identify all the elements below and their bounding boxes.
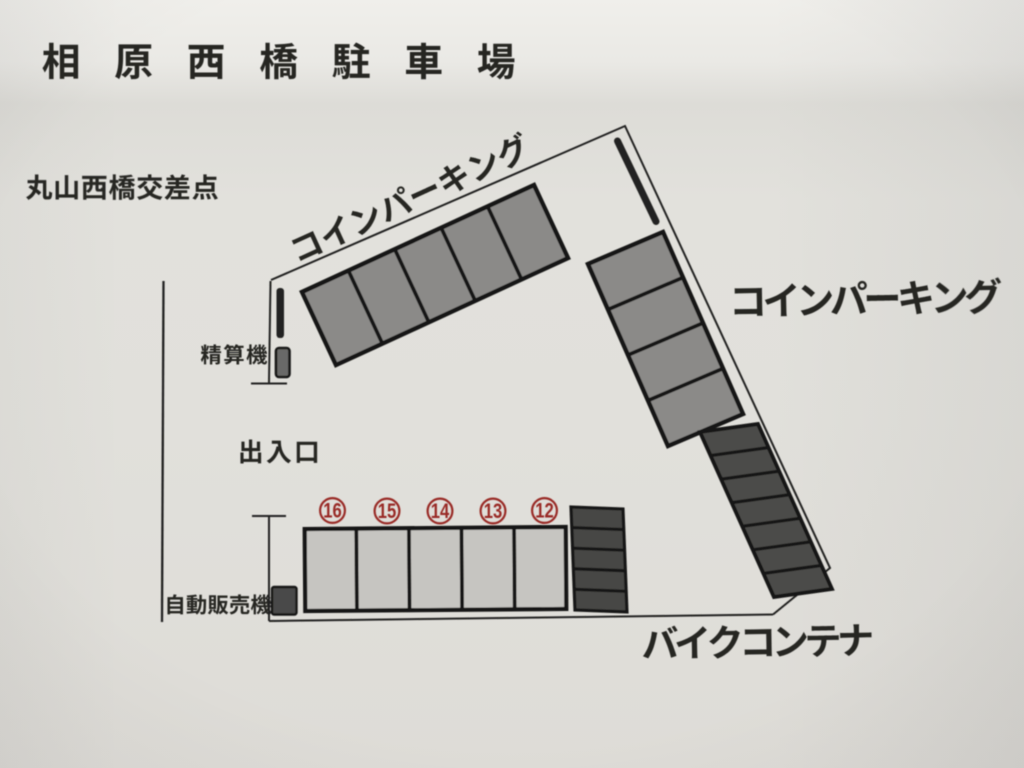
svg-text:15: 15 xyxy=(378,500,397,523)
svg-text:14: 14 xyxy=(431,500,450,523)
svg-text:16: 16 xyxy=(323,500,342,523)
svg-text:13: 13 xyxy=(484,500,503,523)
svg-text:12: 12 xyxy=(535,500,554,523)
